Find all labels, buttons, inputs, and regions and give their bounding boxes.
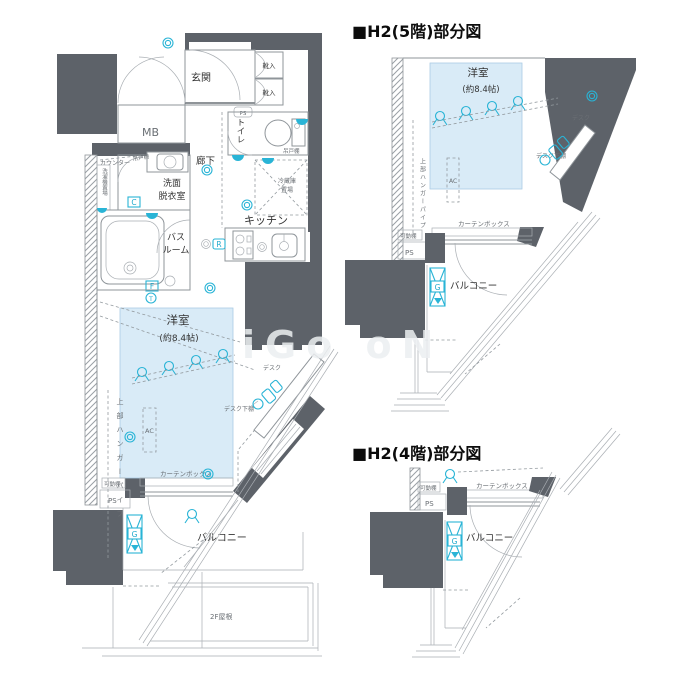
stove-icon [233, 231, 253, 259]
marker-g-5f: G [435, 283, 441, 292]
hallway-area: 廊下 [196, 112, 222, 228]
floor-plan-page: 玄関 靴入 靴入 PS MB 廊下 トイレ 吊戸棚 [0, 0, 675, 696]
balcony-label-4f: バルコニー [466, 533, 513, 544]
sink-icon [157, 154, 183, 170]
movable-shelf-label: 可動棚 [104, 480, 121, 488]
desk-shelf-label: デスク下棚 [224, 405, 254, 413]
ps-label-5f: PS [405, 249, 414, 257]
hatched-wall-5f [392, 58, 403, 262]
ceiling-light-icon-balcony [185, 510, 199, 524]
washroom-label-1: 洗面 [163, 177, 181, 189]
mb-area: MB [118, 57, 185, 143]
marker-c: C [131, 198, 136, 207]
marker-g-4f: G [452, 537, 458, 546]
toilet-icon [265, 120, 291, 146]
ps-label: PS [108, 497, 117, 505]
counter-label: カウンター [100, 159, 130, 167]
wall-window-pier-4f [529, 477, 556, 497]
wall-block-4f [370, 512, 443, 588]
ac-label-5f: AC [449, 178, 457, 185]
entrance-area: 玄関 靴入 靴入 PS [185, 50, 283, 117]
floorplan-image: 玄関 靴入 靴入 PS MB 廊下 トイレ 吊戸棚 [0, 0, 675, 696]
fridge-space: 冷蔵庫 置場 [255, 160, 307, 215]
bath-label-1: バス [167, 232, 185, 243]
hatched-wall [85, 155, 97, 505]
marker-r: R [216, 240, 221, 249]
mb-label: MB [142, 126, 159, 139]
toilet-room: トイレ 吊戸棚 [228, 112, 308, 155]
western-room-size-5f: (約8.4帖) [462, 84, 499, 95]
toilet-shelf-label: 吊戸棚 [283, 147, 300, 155]
shoe-label-2: 靴入 [263, 88, 277, 97]
balcony-label: バルコニー [197, 532, 247, 544]
marker-g: G [132, 530, 138, 539]
marker-t: T [148, 296, 153, 303]
ps-label-4f: PS [425, 500, 434, 508]
fridge-label-1: 冷蔵庫 [278, 177, 296, 185]
washer-label: 洗濯機置場 [101, 167, 108, 197]
balcony-door-arc-4f [470, 505, 522, 557]
ceiling-light-icon-4f [443, 470, 457, 484]
desk-label-5f: デスク [572, 114, 590, 122]
section-4f: ■H2(4階)部分図 カーテンボックス 可動棚 PS G バルコニー [352, 428, 620, 657]
section-5f-title: ■H2(5階)部分図 [352, 22, 481, 41]
washroom: 洗面 脱衣室 カウンター 吊戸棚 洗濯機置場 C [97, 152, 190, 210]
fridge-label-2: 置場 [281, 186, 293, 194]
hanger-pipe-label: 上部ハンガーパイプ [116, 397, 124, 524]
toilet-label: トイレ [235, 118, 245, 144]
genkan-label: 玄関 [191, 71, 211, 84]
corridor-door-arc-1 [118, 57, 164, 103]
ac-label: AC [145, 427, 154, 435]
washroom-label-2: 脱衣室 [158, 190, 185, 202]
movable-shelf-label-4f: 可動棚 [420, 484, 437, 492]
roof-label: 2F屋根 [210, 612, 232, 621]
hatched-wall-4f [410, 468, 420, 510]
western-room-label-5f: 洋室 [468, 66, 489, 79]
movable-shelf-label-5f: 可動棚 [400, 232, 417, 240]
balcony-door-arc [148, 496, 200, 548]
curtain-box-label-5f: カーテンボックス [458, 220, 510, 228]
balcony-area: G バルコニー [123, 500, 303, 586]
shoe-label-1: 靴入 [263, 61, 277, 70]
western-room-size: (約8.4帖) [159, 332, 198, 344]
kitchen-sink-icon [272, 234, 297, 257]
kitchen-label: キッチン [244, 214, 288, 227]
section-4f-title: ■H2(4階)部分図 [352, 444, 481, 463]
bath-faucet-icon [165, 276, 175, 286]
bath-label-2: ルーム [163, 245, 190, 256]
curtain-box-label-4f: カーテンボックス [476, 482, 528, 490]
watermark: iGo oN [242, 323, 443, 367]
bathroom: バス ルーム F T [97, 210, 190, 303]
balcony-label-5f: バルコニー [450, 281, 497, 292]
corridor-door-arc-2 [139, 57, 185, 103]
western-room-label: 洋室 [167, 313, 190, 327]
kitchen-area: キッチン R [202, 214, 306, 261]
hanger-pipe-label-5f: 上部ハンガーパイプ [419, 157, 426, 230]
